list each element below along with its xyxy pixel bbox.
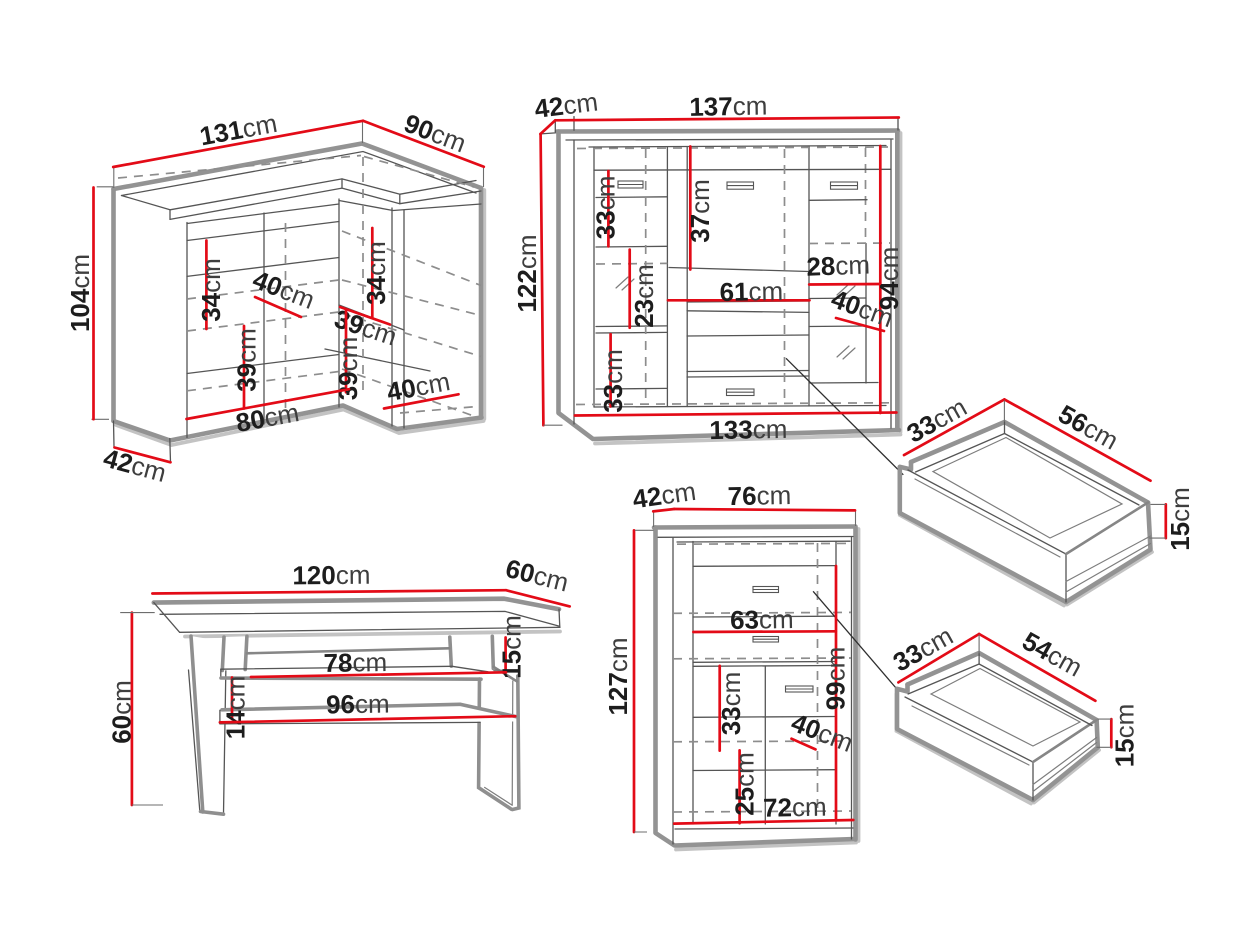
svg-text:28cm: 28cm xyxy=(806,250,871,282)
svg-text:104cm: 104cm xyxy=(65,254,95,332)
svg-text:137cm: 137cm xyxy=(689,91,768,122)
svg-text:61cm: 61cm xyxy=(719,276,783,307)
svg-text:33cm: 33cm xyxy=(598,349,628,413)
svg-text:34cm: 34cm xyxy=(196,258,226,322)
svg-text:99cm: 99cm xyxy=(821,647,851,711)
svg-text:127cm: 127cm xyxy=(603,637,633,715)
svg-text:60cm: 60cm xyxy=(107,680,137,744)
svg-text:15cm: 15cm xyxy=(497,615,527,679)
svg-text:63cm: 63cm xyxy=(730,604,794,635)
svg-text:23cm: 23cm xyxy=(629,264,659,328)
svg-text:34cm: 34cm xyxy=(361,241,391,305)
svg-text:14cm: 14cm xyxy=(221,676,251,740)
svg-text:96cm: 96cm xyxy=(326,688,390,719)
svg-text:78cm: 78cm xyxy=(323,647,387,678)
svg-text:15cm: 15cm xyxy=(1110,704,1140,768)
svg-text:37cm: 37cm xyxy=(685,179,715,243)
svg-text:33cm: 33cm xyxy=(716,672,746,736)
svg-text:76cm: 76cm xyxy=(727,480,791,511)
svg-text:25cm: 25cm xyxy=(730,752,760,816)
svg-text:122cm: 122cm xyxy=(512,234,542,312)
svg-text:120cm: 120cm xyxy=(292,560,370,591)
svg-text:33cm: 33cm xyxy=(590,176,620,240)
svg-text:39cm: 39cm xyxy=(232,328,262,392)
svg-text:133cm: 133cm xyxy=(709,414,788,445)
svg-text:72cm: 72cm xyxy=(763,792,827,823)
svg-text:15cm: 15cm xyxy=(1165,487,1195,551)
